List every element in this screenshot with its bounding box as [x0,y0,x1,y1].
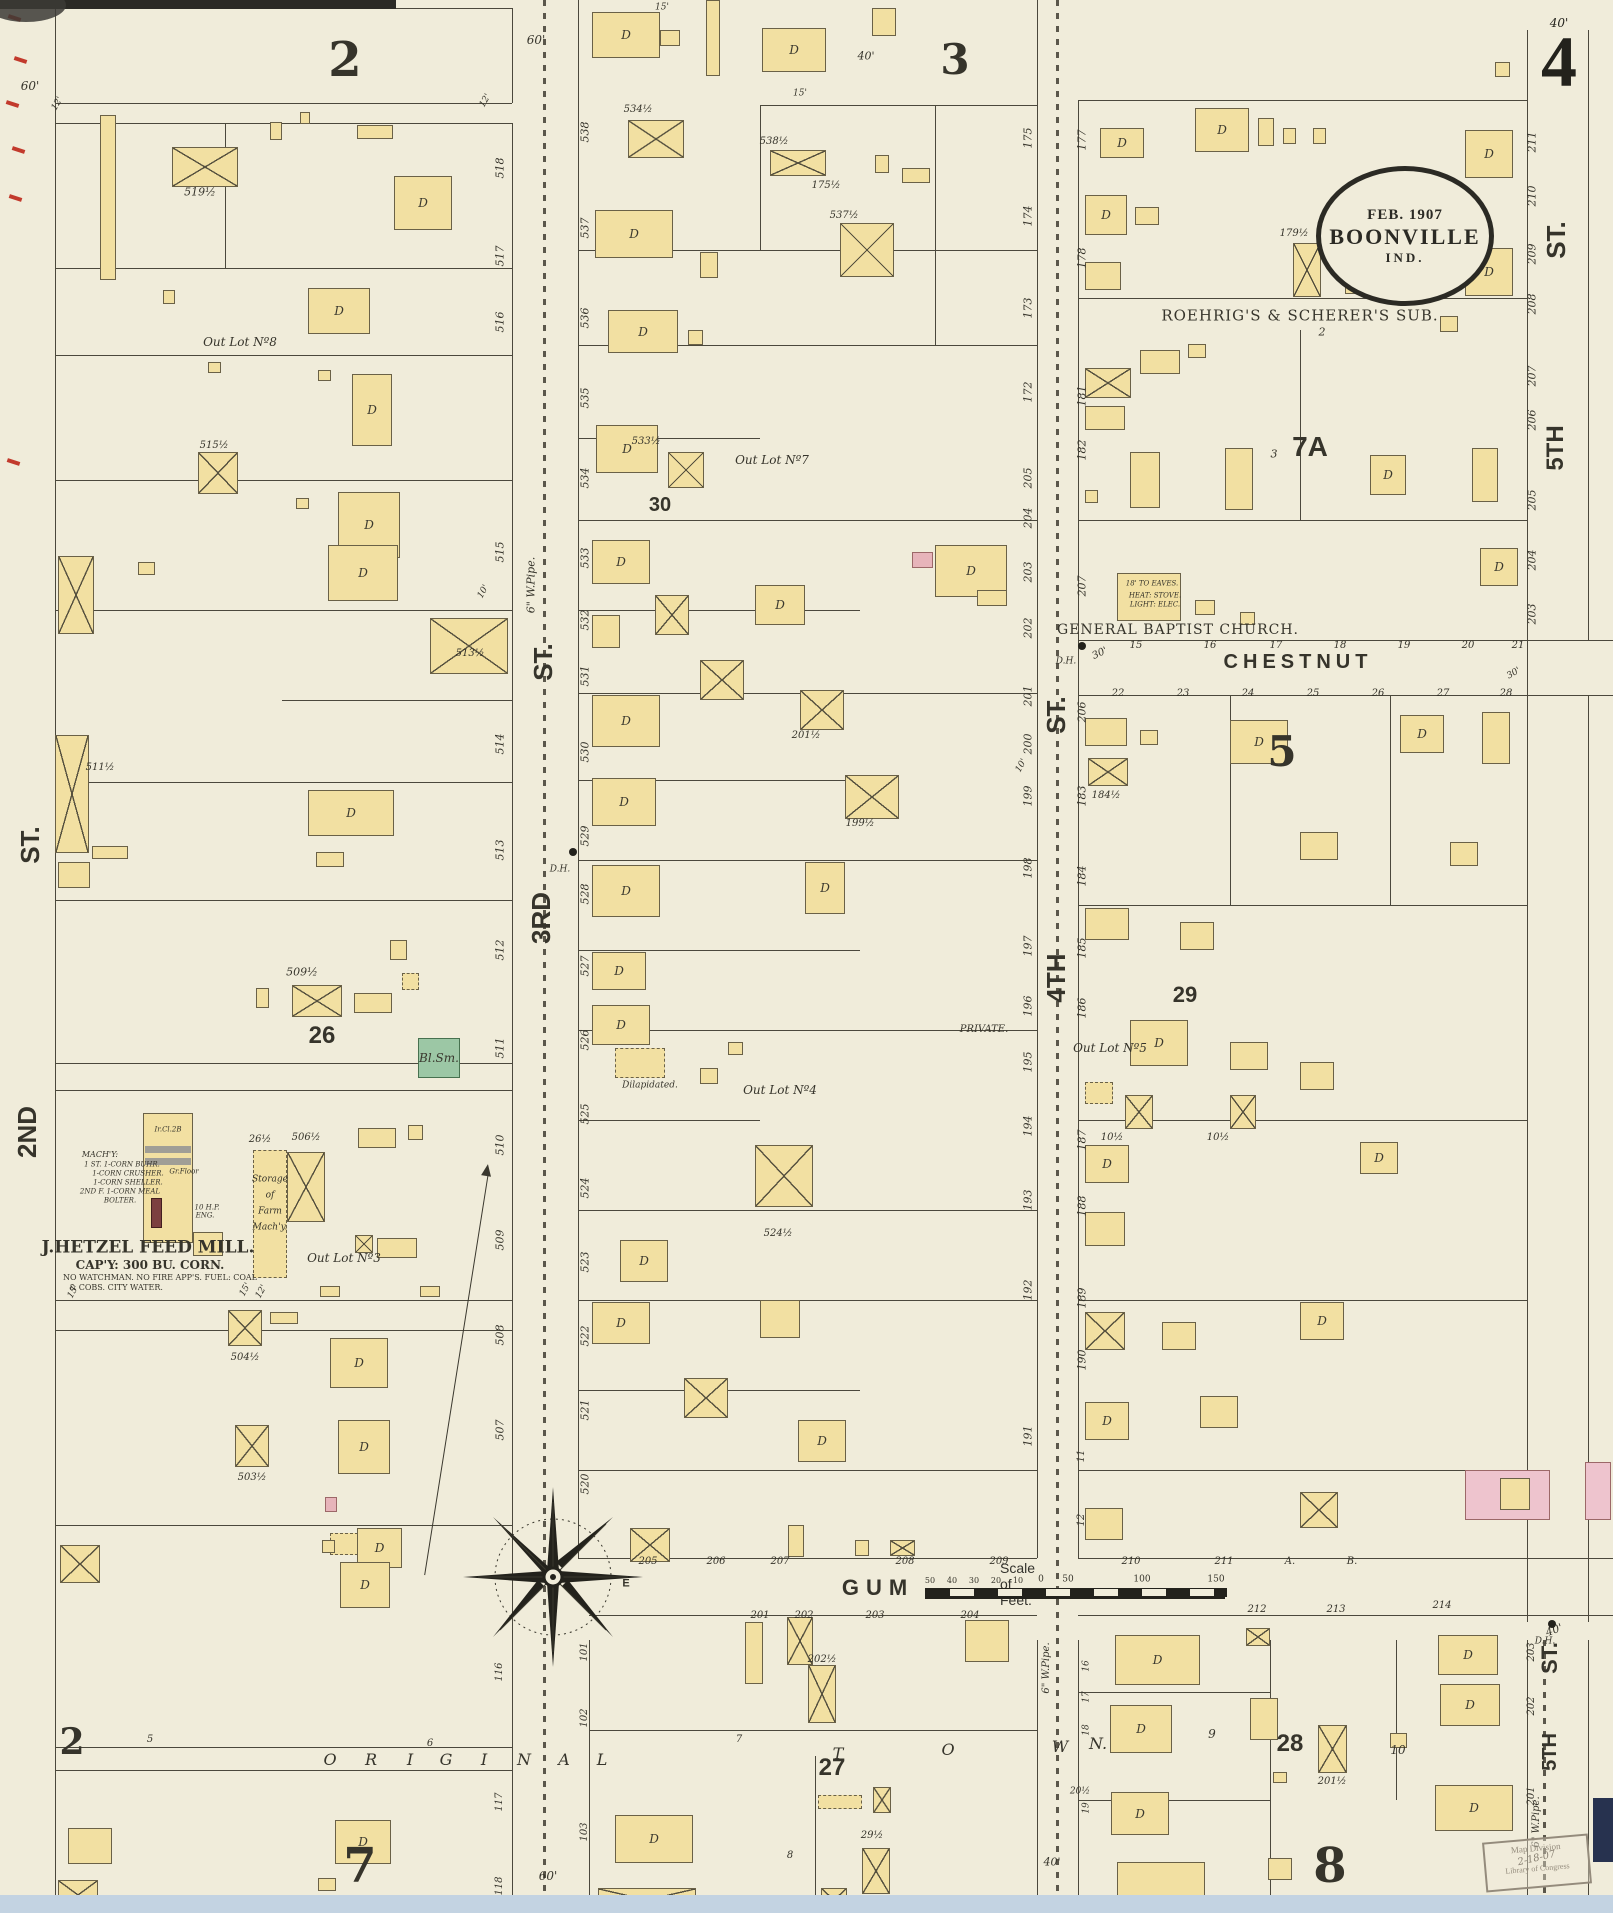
building-label: D [1217,123,1227,137]
registration-mark [14,56,28,64]
building [151,1198,162,1228]
map-label: 524 [580,1178,591,1199]
building [1585,1462,1611,1520]
building [1230,1095,1256,1129]
scan-edge-strip [0,1895,1613,1913]
building [58,556,94,634]
building: D [308,288,370,334]
map-label: 204 [1527,550,1538,571]
building: D [592,1302,650,1344]
building-label: D [789,43,799,57]
map-label: 30 [649,495,671,515]
map-label: 29½ [861,1831,883,1841]
building-label: D [966,564,976,578]
building: D [592,695,660,747]
map-label: 19 [1083,1802,1092,1813]
map-label: 6 [427,1739,433,1749]
map-label: 201 [1527,1786,1537,1805]
parcel-line [578,860,1037,861]
map-label: 206 [1077,702,1088,723]
building [138,562,155,575]
building: D [596,425,658,473]
map-label: 10' [1015,758,1030,775]
map-label: 203 [1527,604,1538,625]
map-label: 510 [495,1135,506,1156]
building-label: D [1102,1157,1112,1171]
map-label: 178 [1077,248,1088,269]
building [55,735,89,853]
map-label: 195 [1023,1052,1034,1073]
building-label: D [616,555,626,569]
building [316,852,344,867]
map-label: 196 [1023,996,1034,1017]
map-label: 1-CORN CRUSHER. [92,1171,164,1178]
building [1246,1628,1270,1646]
building-label: D [621,884,631,898]
map-label: 6" W.Pipe. [1042,1642,1052,1693]
building-label: D [1494,560,1504,574]
building-label: D [1463,1648,1473,1662]
map-label: 27 [1437,689,1450,699]
map-label: 523 [580,1252,591,1273]
building [1225,448,1253,510]
building [256,988,269,1008]
building [845,775,899,819]
building: D [1465,130,1513,178]
parcel-line [1078,1640,1079,1902]
map-label: 2ND [14,1106,40,1158]
parcel-line [55,1330,512,1331]
building [1085,1082,1113,1104]
building [1130,452,1160,508]
building [354,993,392,1013]
building [1085,490,1098,503]
building [163,290,175,304]
building: D [1110,1705,1172,1753]
parcel-line [55,103,512,104]
parcel-line [1390,695,1391,905]
map-label: GENERAL BAPTIST CHURCH. [1057,623,1299,637]
map-label: 198 [1023,858,1034,879]
building [628,120,684,158]
map-label: 7 [343,1842,376,1890]
building [1450,842,1478,866]
building [745,1622,763,1684]
map-label: Gr.Floor [169,1169,198,1176]
map-label: 513½ [456,649,485,659]
parcel-line [578,950,860,951]
parcel-line [1078,100,1527,101]
parcel-line [1078,1300,1527,1301]
map-label: ST. [17,826,43,864]
map-label: 183 [1077,786,1088,807]
building [818,1795,862,1809]
building [208,362,221,373]
map-label: 202 [1023,618,1034,639]
building [770,150,826,176]
map-label: N [517,1752,531,1768]
map-label: 10' [477,584,492,601]
building [320,1286,340,1297]
map-label: G [440,1752,453,1768]
map-label: 518 [495,158,506,179]
building [270,122,282,140]
map-label: J.HETZEL FEED MILL. [42,1240,255,1257]
map-label: 205 [1023,468,1034,489]
building [1085,1312,1125,1350]
building [840,223,894,277]
map-label: 525 [580,1104,591,1125]
building [198,452,238,494]
map-label: 208 [1527,294,1538,315]
building [357,125,393,139]
building [875,155,889,173]
building-label: D [820,881,830,895]
building [660,30,680,46]
parcel-line [578,1300,1037,1301]
map-label: HEAT: STOVE. [1129,593,1181,600]
map-label: 534 [580,468,591,489]
building [755,1145,813,1207]
building-label: D [359,1440,369,1454]
building: D [805,862,845,914]
building-label: D [1154,1036,1164,1050]
loc-stamp: Map Division 2-18-07 Library of Congress [1482,1833,1592,1892]
map-label: 10 H.P. [195,1205,220,1212]
registration-mark [6,100,20,108]
map-label: 187 [1077,1130,1088,1151]
map-label: 22 [1112,689,1125,699]
map-label: 204 [1023,508,1034,529]
building-label: D [1101,208,1111,222]
sanborn-map-sheet: DDDDDDBl.Sm.DDDDDDDDDDDDDDDDDDDDDDDDDDDD… [0,0,1613,1913]
parcel-line [225,123,226,268]
map-label: 206 [706,1557,725,1567]
map-label: I [407,1752,413,1768]
building [1162,1322,1196,1350]
map-label: 117 [495,1792,505,1811]
building [1085,406,1125,430]
building: D [762,28,826,72]
map-label: D.H. [1535,1638,1555,1647]
map-label: 5TH [1544,425,1568,470]
building [358,1128,396,1148]
building-label: D [1469,1801,1479,1815]
map-label: 526 [580,1030,591,1051]
map-label: ST. [1543,221,1569,259]
map-label: 18' TO EAVES. [1126,581,1178,588]
map-label: 513 [495,840,506,861]
map-label: 205 [1527,490,1538,511]
map-label: 537 [580,218,591,239]
map-label: T [833,1746,844,1762]
map-label: 203 [865,1611,884,1621]
building-label: D [616,1316,626,1330]
parcel-line [578,610,860,611]
map-label: 5 [147,1735,153,1745]
building-label: D [364,518,374,532]
map-label: 16 [1083,1660,1092,1671]
building: D [394,176,452,230]
building [873,1787,891,1813]
map-label: 201½ [1318,1777,1347,1787]
parcel-line [55,1747,512,1748]
map-label: Out Lot Nº3 [307,1252,381,1264]
edge-color-patch [1593,1798,1613,1862]
building [1135,207,1159,225]
building-label: D [354,1356,364,1370]
map-label: 60' [539,1870,558,1882]
map-label: 15 [1130,641,1143,651]
building [92,846,128,859]
map-label: 21 [1512,641,1525,651]
map-label: 12' [479,93,494,110]
building [977,590,1007,606]
map-label: 20½ [1070,1788,1090,1797]
map-label: 18 [1334,641,1347,651]
building-label: D [1153,1653,1163,1667]
map-label: 503½ [238,1473,267,1483]
map-label: 182 [1077,440,1088,461]
map-label: A [558,1752,570,1768]
building-label: D [1102,1414,1112,1428]
building-label: D [1383,468,1393,482]
building-label: D [1374,1151,1384,1165]
map-label: 531 [580,666,591,687]
building-label: D [360,1578,370,1592]
building [1085,908,1129,940]
title-state: IND. [1385,250,1424,266]
map-label: NO WATCHMAN. NO FIRE APP'S. FUEL: COAL [63,1274,257,1282]
map-label: 4TH [1043,953,1069,1002]
map-label: 508 [495,1325,506,1346]
parcel-line [1037,0,1038,1558]
building-label: D [649,1832,659,1846]
parcel-line [1078,1800,1270,1801]
building [228,1310,262,1346]
building [318,370,331,381]
map-label: 506½ [292,1133,321,1143]
building [688,330,703,345]
parcel-line [589,1730,1037,1731]
parcel-line [578,1120,760,1121]
title-city: BOONVILLE [1329,224,1480,250]
map-label: 40' [857,51,874,62]
building-label: D [1484,147,1494,161]
map-label: W [1052,1739,1068,1755]
map-label: 533 [580,548,591,569]
map-label: 516 [495,312,506,333]
map-label: LIGHT: ELEC. [1130,602,1180,609]
building [1085,1508,1123,1540]
building: D [592,12,660,58]
map-label: 7 [736,1735,742,1745]
building [408,1125,423,1140]
map-label: 28 [1277,1732,1304,1756]
map-label: 0 [1038,1576,1044,1585]
hydrant-dot-icon [1548,1620,1556,1628]
map-label: 15' [239,1282,254,1299]
building-label: D [619,795,629,809]
map-label: 1 ST. 1-CORN BUHR. [84,1162,160,1169]
parcel-line [1078,1692,1270,1693]
building: D [595,210,673,258]
map-label: 210 [1121,1557,1140,1567]
map-label: 206 [1527,410,1538,431]
map-label: 15' [793,90,807,99]
building: D [592,952,646,990]
sheet-number: 4 [1524,30,1594,95]
map-label: 2 [59,1724,84,1760]
map-label: 207 [770,1557,789,1567]
map-label: 24 [1242,689,1255,699]
building: D [1100,128,1144,158]
building [287,1152,325,1222]
building: D [1300,1302,1344,1340]
map-label: GUM [842,1577,914,1599]
hydrant-dot-icon [1078,642,1086,650]
map-label: 207 [1527,366,1538,387]
building [1293,243,1321,297]
map-label: 200 [1023,734,1034,755]
map-label: 514 [495,734,506,755]
parcel-line [55,355,512,356]
map-label: 5TH [1540,1733,1560,1771]
map-label: 30' [1091,646,1109,662]
building [100,115,116,280]
map-label: 538 [580,122,591,143]
building [292,985,342,1017]
map-label: 150 [1207,1576,1224,1585]
map-label: 20 [1462,641,1475,651]
map-label: 203 [1023,562,1034,583]
map-label: Ir.Cl.2B [155,1127,182,1134]
map-label: 504½ [231,1353,260,1363]
parcel-line [760,105,761,250]
map-label: 507 [495,1420,506,1441]
building [655,595,689,635]
map-label: 9 [1208,1728,1216,1740]
parcel-line [1078,298,1527,299]
map-label: N. [1089,1736,1107,1752]
map-label: 30 [969,1577,979,1585]
building: D [592,540,650,584]
map-label: 511 [495,1038,506,1059]
map-label: 17 [1270,641,1283,651]
building [1273,1772,1287,1783]
parcel-line [55,1525,512,1526]
building [872,8,896,36]
building [965,1620,1009,1662]
map-label: 12' [51,96,66,113]
building-label: D [418,196,428,210]
building [1085,718,1127,746]
building [60,1545,100,1583]
building [706,0,720,76]
map-label: 201½ [792,731,821,741]
map-label: 210 [1527,186,1538,207]
map-label: 191 [1023,1426,1034,1447]
building [318,1878,336,1891]
building-label: D [622,442,632,456]
parcel-line [578,520,1037,521]
map-label: 2 [1319,327,1326,338]
building [1500,1478,1530,1510]
building [855,1540,869,1556]
building [668,452,704,488]
map-label: 12 [1077,1514,1087,1527]
map-label: CAP'Y: 300 BU. CORN. [76,1259,225,1271]
map-label: BOLTER. [104,1198,136,1205]
map-label: 511½ [86,763,115,773]
map-label: O [941,1742,954,1758]
map-label: 100 [1133,1576,1150,1585]
map-label: 537½ [830,211,859,221]
map-label: PRIVATE. [960,1025,1009,1035]
map-label: 118 [495,1876,505,1895]
map-label: 173 [1023,298,1034,319]
parcel-line [1396,1640,1397,1800]
map-label: ST. [530,643,556,681]
building [296,498,309,509]
building [1283,128,1296,144]
building-label: D [358,566,368,580]
map-label: 177 [1077,130,1088,151]
map-label: 534½ [624,105,653,115]
map-label: ENG. [196,1213,215,1220]
scale-ruler-base [925,1597,1225,1599]
registration-mark [9,194,23,202]
building [890,1540,915,1556]
parcel-line [55,1300,512,1301]
map-label: 172 [1023,382,1034,403]
parcel-line [55,123,512,124]
corner-smudge [0,0,66,22]
building [377,1238,417,1258]
map-label: 174 [1023,206,1034,227]
parcel-line [55,900,512,901]
building [1472,448,1498,502]
parcel-line [55,268,512,269]
building [1268,1858,1292,1880]
building-label: Bl.Sm. [419,1051,459,1065]
building: D [592,1005,650,1045]
building [1313,128,1326,144]
map-label: 532 [580,610,591,631]
map-label: 509½ [286,967,318,978]
parcel-line [1078,1558,1613,1559]
map-label: 103 [580,1822,590,1841]
map-label: 16 [1204,641,1217,651]
map-label: 202 [794,1611,813,1621]
building [788,1525,804,1557]
building: D [1360,1142,1398,1174]
building: D [755,585,805,625]
building: D [1480,548,1518,586]
map-label: 40 [947,1577,957,1585]
building [700,660,744,700]
map-label: ST. [1539,1642,1561,1674]
building [172,147,238,187]
building [902,168,930,183]
map-label: 50 [925,1577,935,1585]
map-label: 188 [1077,1196,1088,1217]
map-label: 40' [1043,1857,1060,1868]
building-label: D [1117,136,1127,150]
map-label: 28 [1500,689,1513,699]
map-label: 1-CORN SHELLER. [93,1180,162,1187]
building [912,552,933,568]
